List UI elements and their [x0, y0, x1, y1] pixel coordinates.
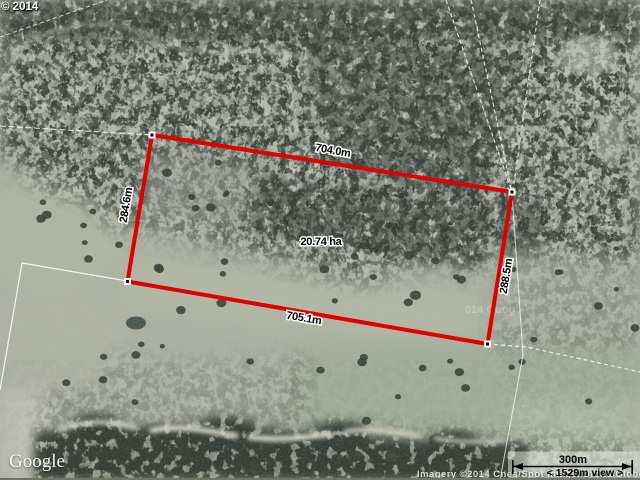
svg-text:< 1529m view >: < 1529m view >: [547, 467, 623, 479]
svg-text:20.74 ha: 20.74 ha: [300, 236, 342, 248]
svg-text:Google: Google: [9, 451, 65, 472]
svg-text:014 Goog: 014 Goog: [465, 304, 515, 316]
svg-text:300m: 300m: [559, 454, 587, 466]
svg-text:© 2014: © 2014: [1, 1, 39, 13]
